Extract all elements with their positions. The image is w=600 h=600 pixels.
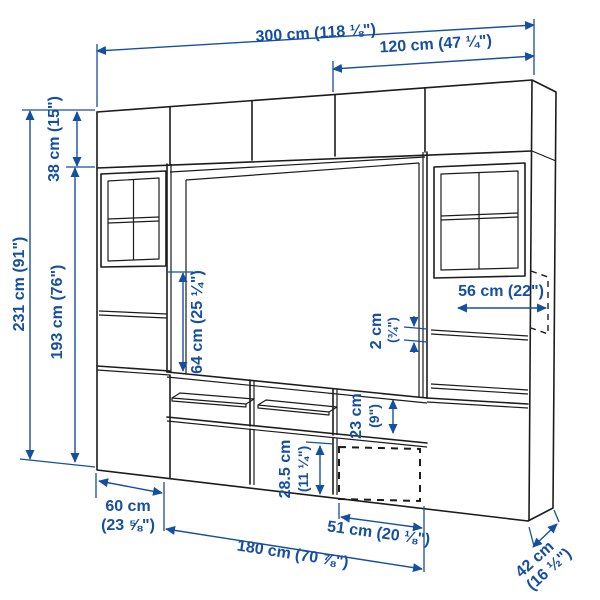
dimension-annotations: 300 cm (118 ⅛") 120 cm (47 ¼") 38 cm (15… [11,19,575,594]
dim-shelf-thickness-cm: 2 cm [368,313,385,349]
dim-cabinet-height: 193 cm (76") [49,265,66,360]
dim-bench-width: 180 cm (70 ⅞") [236,538,350,572]
push-open-door-outline [339,447,420,501]
dim-line-unit-width [99,481,162,493]
dim-line-upper-right-width [333,56,534,69]
dim-niche-height-cm: 23 cm [348,393,365,438]
dim-niche-height-in: (9") [366,404,382,428]
dim-open-shelf-height: 64 cm (25 ¼") [189,270,206,374]
dim-total-height: 231 cm (91") [11,237,28,332]
dim-upper-right-width: 120 cm (47 ¼") [379,32,492,56]
dim-drawer-front-height-in: (11 ¼") [295,446,311,492]
dim-shelf-width: 56 cm (22") [458,283,544,300]
dim-depth-group: 42 cm (16 ½") [512,533,575,594]
dim-unit-width-cm: 60 cm [105,498,150,515]
furniture-line-art [97,80,556,521]
dim-shelf-thickness-in: (¾") [385,317,400,343]
dim-unit-width-in: (23 ⅝") [101,517,155,534]
dim-door-width: 51 cm (20 ⅛") [326,518,431,548]
dim-drawer-front-height-cm: 28.5 cm [277,440,294,499]
tv-storage-dimension-diagram: 300 cm (118 ⅛") 120 cm (47 ¼") 38 cm (15… [0,0,600,600]
dim-total-width: 300 cm (118 ⅛") [255,21,376,45]
dim-top-cabinet-height: 38 cm (15") [46,96,63,182]
dimension-diagram-canvas: 300 cm (118 ⅛") 120 cm (47 ¼") 38 cm (15… [0,0,600,600]
